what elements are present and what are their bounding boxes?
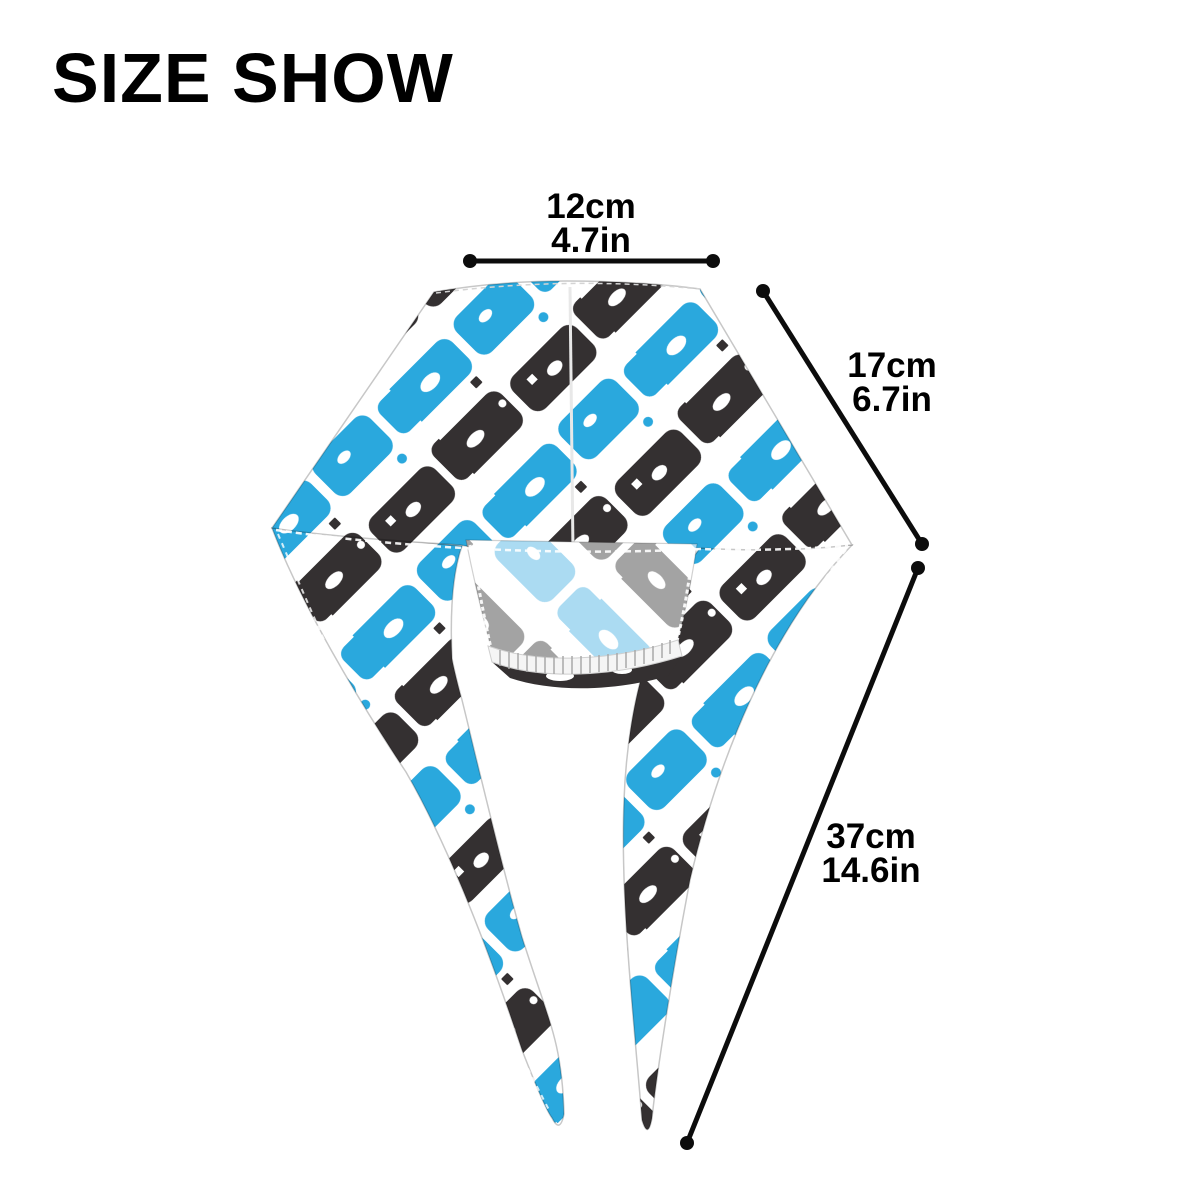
crown-panel — [272, 281, 852, 554]
dimension-label-side-depth: 17cm 6.7in — [792, 349, 992, 417]
top-width-in: 4.7in — [491, 224, 691, 258]
headwrap-graphic — [0, 0, 1200, 1200]
dimension-label-top-width: 12cm 4.7in — [491, 190, 691, 258]
tail-length-in: 14.6in — [771, 854, 971, 888]
side-depth-cm: 17cm — [792, 349, 992, 383]
side-depth-in: 6.7in — [792, 383, 992, 417]
top-width-cm: 12cm — [491, 190, 691, 224]
size-diagram: SIZE SHOW — [0, 0, 1200, 1200]
tail-length-cm: 37cm — [771, 820, 971, 854]
dimension-label-tail-length: 37cm 14.6in — [771, 820, 971, 888]
headwrap-illustration — [272, 281, 852, 1130]
